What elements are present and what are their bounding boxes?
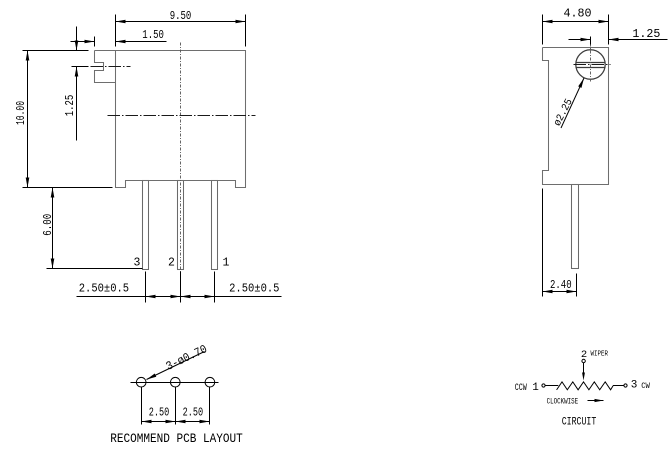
svg-text:9.50: 9.50 bbox=[170, 9, 192, 23]
svg-text:1: 1 bbox=[222, 256, 229, 269]
svg-text:2.50: 2.50 bbox=[183, 406, 204, 420]
svg-text:WIPER: WIPER bbox=[591, 351, 609, 359]
svg-text:10.00: 10.00 bbox=[14, 101, 28, 125]
svg-text:CCW: CCW bbox=[515, 383, 527, 394]
svg-text:1.50: 1.50 bbox=[142, 28, 164, 42]
svg-text:2: 2 bbox=[168, 256, 175, 269]
svg-text:2.50±0.5: 2.50±0.5 bbox=[79, 282, 129, 296]
svg-text:3: 3 bbox=[631, 380, 638, 392]
svg-text:CLOCKWISE: CLOCKWISE bbox=[547, 397, 579, 407]
svg-text:CW: CW bbox=[641, 382, 650, 391]
svg-text:1: 1 bbox=[532, 382, 539, 394]
svg-text:1.25: 1.25 bbox=[632, 27, 660, 41]
svg-text:RECOMMEND PCB LAYOUT: RECOMMEND PCB LAYOUT bbox=[110, 432, 243, 446]
svg-text:2.40: 2.40 bbox=[550, 278, 572, 292]
svg-text:CIRCUIT: CIRCUIT bbox=[562, 417, 597, 429]
svg-text:6.00: 6.00 bbox=[41, 214, 55, 236]
svg-text:2.50±0.5: 2.50±0.5 bbox=[229, 282, 279, 296]
svg-text:3: 3 bbox=[133, 256, 140, 269]
svg-text:2.50: 2.50 bbox=[149, 406, 170, 420]
svg-text:1.25: 1.25 bbox=[63, 95, 77, 117]
svg-text:4.80: 4.80 bbox=[564, 6, 592, 20]
